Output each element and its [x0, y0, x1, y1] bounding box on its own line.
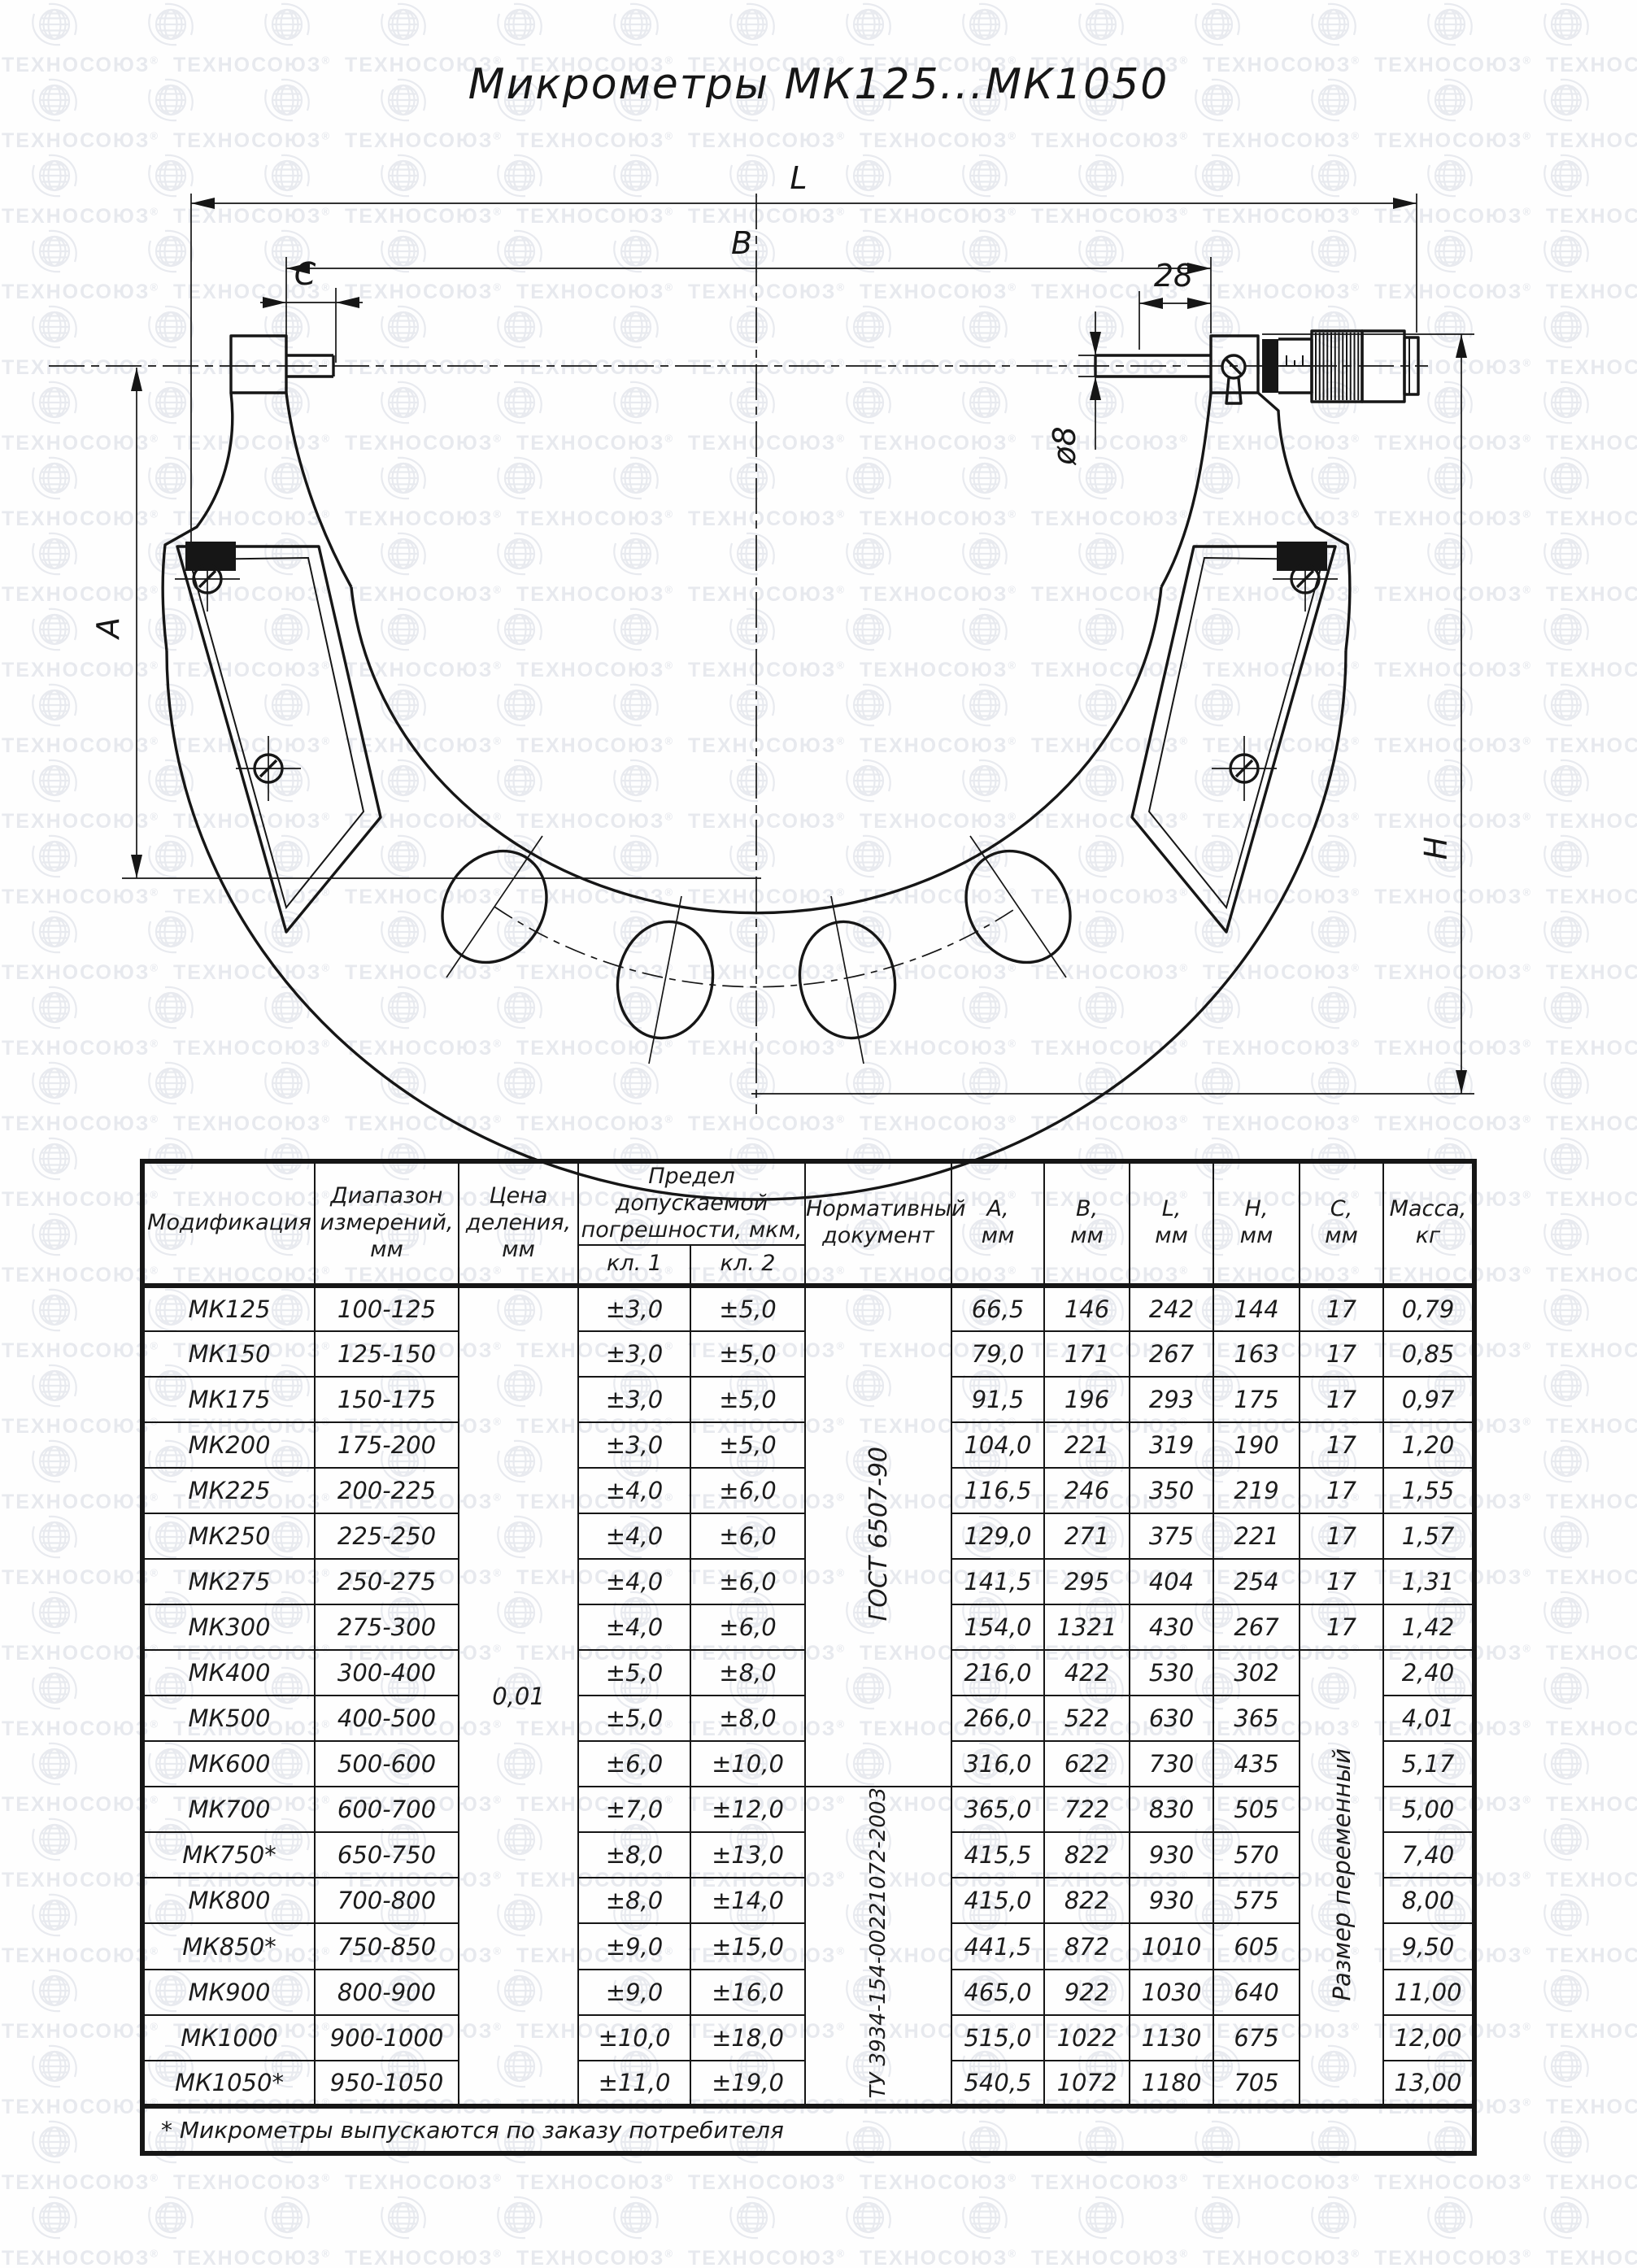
cell-modification: МК850*: [142, 1923, 315, 1969]
cell-class1: ±4,0: [578, 1604, 690, 1650]
cell-a: 441,5: [951, 1923, 1044, 1969]
vertical-label: ТУ 3934-154-00221072-2003: [866, 1787, 890, 2098]
cell-c-variable: Размер переменный: [1300, 1650, 1383, 2106]
cell-h: 190: [1213, 1422, 1300, 1468]
col-header-mass: Масса, кг: [1383, 1161, 1474, 1286]
footnote-text: * Микрометры выпускаются по заказу потре…: [142, 2106, 1474, 2153]
cell-l: 375: [1130, 1513, 1213, 1559]
cell-mass: 7,40: [1383, 1832, 1474, 1878]
dimension-28: 28: [1139, 258, 1211, 350]
cell-a: 465,0: [951, 1970, 1044, 2015]
cell-class1: ±9,0: [578, 1923, 690, 1969]
cell-c: 17: [1300, 1331, 1383, 1377]
cell-h: 605: [1213, 1923, 1300, 1969]
cell-class2: ±8,0: [690, 1696, 805, 1741]
cell-h: 267: [1213, 1604, 1300, 1650]
cell-b: 722: [1044, 1787, 1130, 1832]
cell-modification: МК400: [142, 1650, 315, 1696]
cell-modification: МК800: [142, 1878, 315, 1923]
cell-class1: ±4,0: [578, 1513, 690, 1559]
cell-b: 295: [1044, 1559, 1130, 1604]
cell-mass: 2,40: [1383, 1650, 1474, 1696]
cell-modification: МК250: [142, 1513, 315, 1559]
cell-mass: 9,50: [1383, 1923, 1474, 1969]
cell-mass: 4,01: [1383, 1696, 1474, 1741]
col-header-class2: кл. 2: [690, 1245, 805, 1286]
cell-mass: 0,79: [1383, 1286, 1474, 1331]
col-header-range: Диапазон измерений, мм: [315, 1161, 459, 1286]
cell-h: 705: [1213, 2061, 1300, 2106]
cell-modification: МК150: [142, 1331, 315, 1377]
cell-a: 415,0: [951, 1878, 1044, 1923]
col-header-class1: кл. 1: [578, 1245, 690, 1286]
cell-class1: ±8,0: [578, 1832, 690, 1878]
cell-mass: 1,31: [1383, 1559, 1474, 1604]
cell-l: 830: [1130, 1787, 1213, 1832]
cell-class2: ±5,0: [690, 1331, 805, 1377]
cell-mass: 11,00: [1383, 1970, 1474, 2015]
vertical-label: Размер переменный: [1328, 1748, 1356, 2000]
cell-a: 104,0: [951, 1422, 1044, 1468]
spec-table: Модификация Диапазон измерений, мм Цена …: [140, 1159, 1477, 2156]
cell-b: 1072: [1044, 2061, 1130, 2106]
cell-class1: ±8,0: [578, 1878, 690, 1923]
cell-range: 225-250: [315, 1513, 459, 1559]
cell-b: 822: [1044, 1832, 1130, 1878]
cell-a: 515,0: [951, 2015, 1044, 2061]
cell-h: 365: [1213, 1696, 1300, 1741]
cell-class2: ±19,0: [690, 2061, 805, 2106]
cell-modification: МК175: [142, 1377, 315, 1422]
cell-h: 219: [1213, 1468, 1300, 1513]
cell-mass: 5,00: [1383, 1787, 1474, 1832]
cell-l: 293: [1130, 1377, 1213, 1422]
cell-a: 365,0: [951, 1787, 1044, 1832]
cell-h: 144: [1213, 1286, 1300, 1331]
table-header: Модификация Диапазон измерений, мм Цена …: [142, 1161, 1474, 1286]
cell-h: 254: [1213, 1559, 1300, 1604]
cell-b: 1022: [1044, 2015, 1130, 2061]
cell-l: 404: [1130, 1559, 1213, 1604]
cell-range: 275-300: [315, 1604, 459, 1650]
dim-label-dia8: ø8: [1047, 426, 1082, 465]
cell-division: 0,01: [459, 1286, 578, 2106]
cell-range: 400-500: [315, 1696, 459, 1741]
cell-a: 266,0: [951, 1696, 1044, 1741]
cell-range: 700-800: [315, 1878, 459, 1923]
cell-l: 930: [1130, 1878, 1213, 1923]
cell-document: ГОСТ 6507-90: [805, 1286, 951, 1787]
cell-range: 100-125: [315, 1286, 459, 1331]
cell-l: 319: [1130, 1422, 1213, 1468]
cell-class1: ±7,0: [578, 1787, 690, 1832]
cell-h: 570: [1213, 1832, 1300, 1878]
cell-l: 630: [1130, 1696, 1213, 1741]
cell-b: 872: [1044, 1923, 1130, 1969]
cell-class2: ±5,0: [690, 1377, 805, 1422]
cell-class1: ±11,0: [578, 2061, 690, 2106]
cell-a: 129,0: [951, 1513, 1044, 1559]
cell-l: 930: [1130, 1832, 1213, 1878]
dimension-C: C: [260, 256, 363, 363]
cell-modification: МК300: [142, 1604, 315, 1650]
cell-h: 505: [1213, 1787, 1300, 1832]
table-row: МК125100-1250,01±3,0±5,0ГОСТ 6507-9066,5…: [142, 1286, 1474, 1331]
cell-class2: ±5,0: [690, 1422, 805, 1468]
cell-b: 922: [1044, 1970, 1130, 2015]
cell-mass: 1,42: [1383, 1604, 1474, 1650]
cell-modification: МК750*: [142, 1832, 315, 1878]
cell-class2: ±15,0: [690, 1923, 805, 1969]
cell-a: 415,5: [951, 1832, 1044, 1878]
cell-modification: МК225: [142, 1468, 315, 1513]
cell-range: 800-900: [315, 1970, 459, 2015]
col-header-division: Цена деления, мм: [459, 1161, 578, 1286]
table-row: МК700600-700±7,0±12,0ТУ 3934-154-0022107…: [142, 1787, 1474, 1832]
cell-class2: ±6,0: [690, 1604, 805, 1650]
dim-label-28: 28: [1154, 258, 1193, 294]
cell-modification: МК200: [142, 1422, 315, 1468]
cell-c: 17: [1300, 1559, 1383, 1604]
cell-class2: ±6,0: [690, 1559, 805, 1604]
cell-a: 91,5: [951, 1377, 1044, 1422]
cell-h: 302: [1213, 1650, 1300, 1696]
cell-class1: ±6,0: [578, 1741, 690, 1787]
cell-class2: ±8,0: [690, 1650, 805, 1696]
cell-l: 242: [1130, 1286, 1213, 1331]
cell-class1: ±4,0: [578, 1468, 690, 1513]
cell-b: 246: [1044, 1468, 1130, 1513]
col-header-l: L, мм: [1130, 1161, 1213, 1286]
footnote-row: * Микрометры выпускаются по заказу потре…: [142, 2106, 1474, 2153]
centerlines: [49, 194, 1428, 1114]
cell-a: 316,0: [951, 1741, 1044, 1787]
cell-h: 163: [1213, 1331, 1300, 1377]
cell-h: 575: [1213, 1878, 1300, 1923]
cell-range: 950-1050: [315, 2061, 459, 2106]
cell-class1: ±3,0: [578, 1286, 690, 1331]
cell-mass: 5,17: [1383, 1741, 1474, 1787]
cell-mass: 1,20: [1383, 1422, 1474, 1468]
cell-l: 1180: [1130, 2061, 1213, 2106]
cell-l: 1010: [1130, 1923, 1213, 1969]
cell-h: 221: [1213, 1513, 1300, 1559]
catalog-page: ТЕХНОСОЮЗ® ТЕХНОСОЮЗ® ТЕХНОСОЮЗ® ТЕХНОСО…: [0, 0, 1637, 2268]
dimension-dia8: ø8: [1047, 311, 1101, 466]
cell-h: 640: [1213, 1970, 1300, 2015]
cell-modification: МК1050*: [142, 2061, 315, 2106]
cell-range: 175-200: [315, 1422, 459, 1468]
col-header-error-limit: Предел допускаемой погрешности, мкм,: [578, 1161, 805, 1245]
cell-range: 750-850: [315, 1923, 459, 1969]
cell-l: 350: [1130, 1468, 1213, 1513]
cell-class1: ±4,0: [578, 1559, 690, 1604]
cell-class1: ±10,0: [578, 2015, 690, 2061]
cell-c: 17: [1300, 1468, 1383, 1513]
page-title: Микрометры МК125...МК1050: [0, 60, 1637, 109]
col-header-document: Нормативный документ: [805, 1161, 951, 1286]
cell-range: 250-275: [315, 1559, 459, 1604]
cell-class2: ±16,0: [690, 1970, 805, 2015]
cell-c: 17: [1300, 1422, 1383, 1468]
cell-c: 17: [1300, 1286, 1383, 1331]
cell-a: 540,5: [951, 2061, 1044, 2106]
cell-range: 500-600: [315, 1741, 459, 1787]
table-body: МК125100-1250,01±3,0±5,0ГОСТ 6507-9066,5…: [142, 1286, 1474, 2106]
cell-range: 125-150: [315, 1331, 459, 1377]
cell-document: ТУ 3934-154-00221072-2003: [805, 1787, 951, 2106]
cell-b: 196: [1044, 1377, 1130, 1422]
cell-h: 175: [1213, 1377, 1300, 1422]
cell-modification: МК700: [142, 1787, 315, 1832]
thimble-bevel: [1262, 339, 1278, 393]
cell-l: 530: [1130, 1650, 1213, 1696]
cell-b: 622: [1044, 1741, 1130, 1787]
cell-modification: МК275: [142, 1559, 315, 1604]
cell-c: 17: [1300, 1377, 1383, 1422]
col-header-b: В, мм: [1044, 1161, 1130, 1286]
cell-class2: ±12,0: [690, 1787, 805, 1832]
cell-c: 17: [1300, 1513, 1383, 1559]
cell-class2: ±10,0: [690, 1741, 805, 1787]
cell-b: 1321: [1044, 1604, 1130, 1650]
dimension-B: B: [286, 225, 1211, 335]
dim-label-L: L: [790, 160, 807, 196]
cell-range: 300-400: [315, 1650, 459, 1696]
cell-range: 900-1000: [315, 2015, 459, 2061]
cell-class2: ±14,0: [690, 1878, 805, 1923]
cell-b: 422: [1044, 1650, 1130, 1696]
cell-l: 730: [1130, 1741, 1213, 1787]
cell-a: 116,5: [951, 1468, 1044, 1513]
cell-modification: МК500: [142, 1696, 315, 1741]
cell-class1: ±5,0: [578, 1650, 690, 1696]
cell-modification: МК900: [142, 1970, 315, 2015]
cell-b: 822: [1044, 1878, 1130, 1923]
cell-class1: ±9,0: [578, 1970, 690, 2015]
cell-a: 66,5: [951, 1286, 1044, 1331]
cell-class2: ±6,0: [690, 1513, 805, 1559]
cell-class2: ±13,0: [690, 1832, 805, 1878]
cell-class1: ±3,0: [578, 1377, 690, 1422]
cell-mass: 8,00: [1383, 1878, 1474, 1923]
dim-label-A: A: [90, 617, 126, 641]
col-header-c: С, мм: [1300, 1161, 1383, 1286]
cell-b: 146: [1044, 1286, 1130, 1331]
cell-mass: 1,57: [1383, 1513, 1474, 1559]
cell-h: 435: [1213, 1741, 1300, 1787]
cell-class2: ±5,0: [690, 1286, 805, 1331]
cell-b: 271: [1044, 1513, 1130, 1559]
cell-a: 79,0: [951, 1331, 1044, 1377]
cell-l: 1030: [1130, 1970, 1213, 2015]
dim-label-B: B: [731, 225, 752, 261]
cell-class2: ±6,0: [690, 1468, 805, 1513]
cell-mass: 1,55: [1383, 1468, 1474, 1513]
cell-b: 522: [1044, 1696, 1130, 1741]
cell-range: 150-175: [315, 1377, 459, 1422]
cell-class1: ±3,0: [578, 1422, 690, 1468]
cell-range: 200-225: [315, 1468, 459, 1513]
vertical-label: ГОСТ 6507-90: [864, 1447, 893, 1621]
cell-class2: ±18,0: [690, 2015, 805, 2061]
col-header-h: Н, мм: [1213, 1161, 1300, 1286]
cell-mass: 0,85: [1383, 1331, 1474, 1377]
cell-modification: МК600: [142, 1741, 315, 1787]
col-header-a: А, мм: [951, 1161, 1044, 1286]
cell-range: 600-700: [315, 1787, 459, 1832]
cell-class1: ±3,0: [578, 1331, 690, 1377]
cell-l: 1130: [1130, 2015, 1213, 2061]
cell-a: 216,0: [951, 1650, 1044, 1696]
dim-label-H: H: [1418, 837, 1454, 860]
col-header-modification: Модификация: [142, 1161, 315, 1286]
cell-a: 141,5: [951, 1559, 1044, 1604]
dim-label-C: C: [294, 256, 316, 292]
cell-l: 430: [1130, 1604, 1213, 1650]
cell-h: 675: [1213, 2015, 1300, 2061]
cell-b: 221: [1044, 1422, 1130, 1468]
cell-mass: 13,00: [1383, 2061, 1474, 2106]
cell-b: 171: [1044, 1331, 1130, 1377]
cell-c: 17: [1300, 1604, 1383, 1650]
cell-class1: ±5,0: [578, 1696, 690, 1741]
cell-a: 154,0: [951, 1604, 1044, 1650]
dimension-H: H: [751, 334, 1474, 1094]
cell-range: 650-750: [315, 1832, 459, 1878]
cell-modification: МК1000: [142, 2015, 315, 2061]
cell-l: 267: [1130, 1331, 1213, 1377]
cell-modification: МК125: [142, 1286, 315, 1331]
cell-mass: 0,97: [1383, 1377, 1474, 1422]
cell-mass: 12,00: [1383, 2015, 1474, 2061]
